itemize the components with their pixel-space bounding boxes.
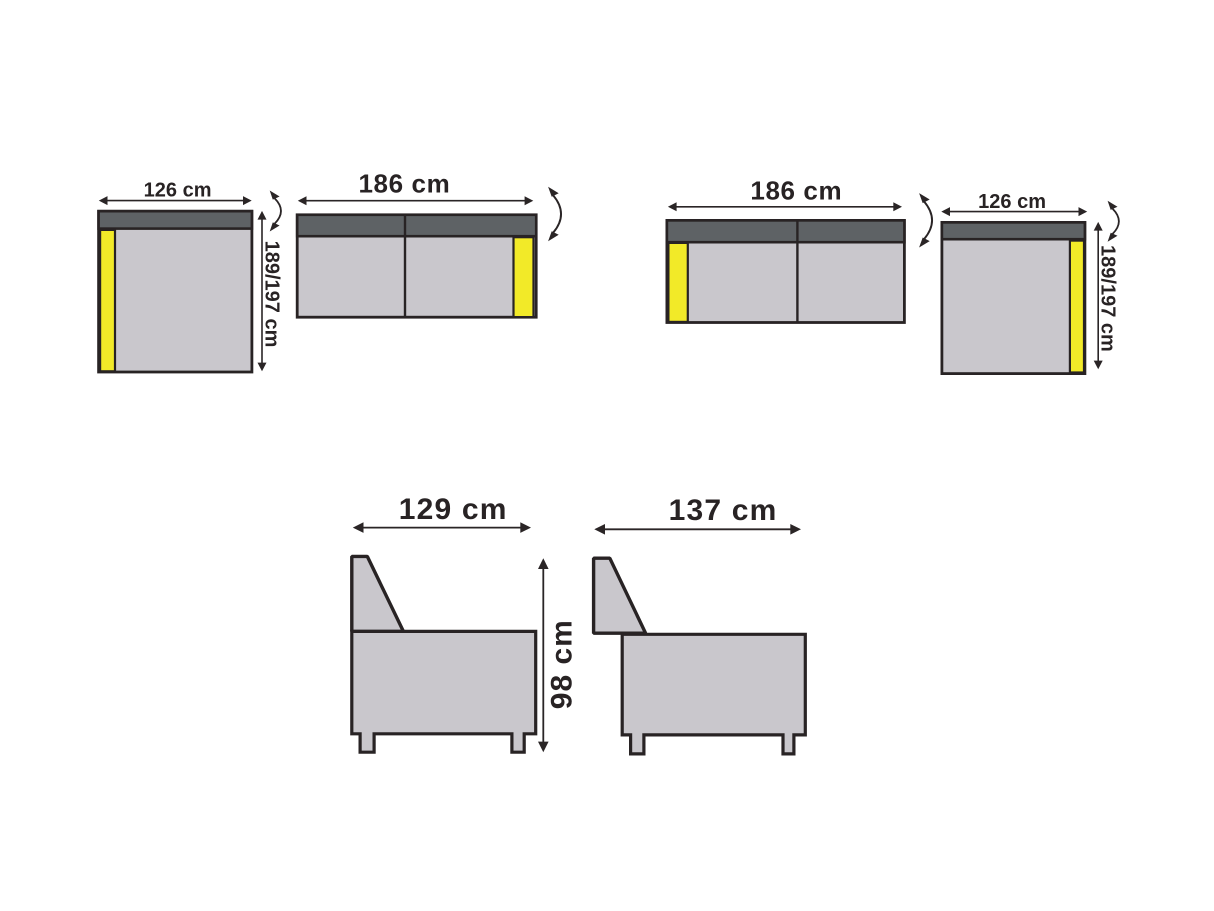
- svg-text:186 cm: 186 cm: [750, 176, 842, 206]
- svg-text:137 cm: 137 cm: [669, 494, 778, 527]
- svg-text:126 cm: 126 cm: [978, 191, 1046, 213]
- svg-text:189/197 cm: 189/197 cm: [261, 241, 283, 348]
- svg-text:186 cm: 186 cm: [359, 168, 451, 198]
- svg-text:129 cm: 129 cm: [399, 493, 508, 526]
- svg-text:98 cm: 98 cm: [546, 619, 579, 709]
- svg-text:189/197 cm: 189/197 cm: [1096, 245, 1118, 352]
- svg-text:126 cm: 126 cm: [144, 180, 212, 202]
